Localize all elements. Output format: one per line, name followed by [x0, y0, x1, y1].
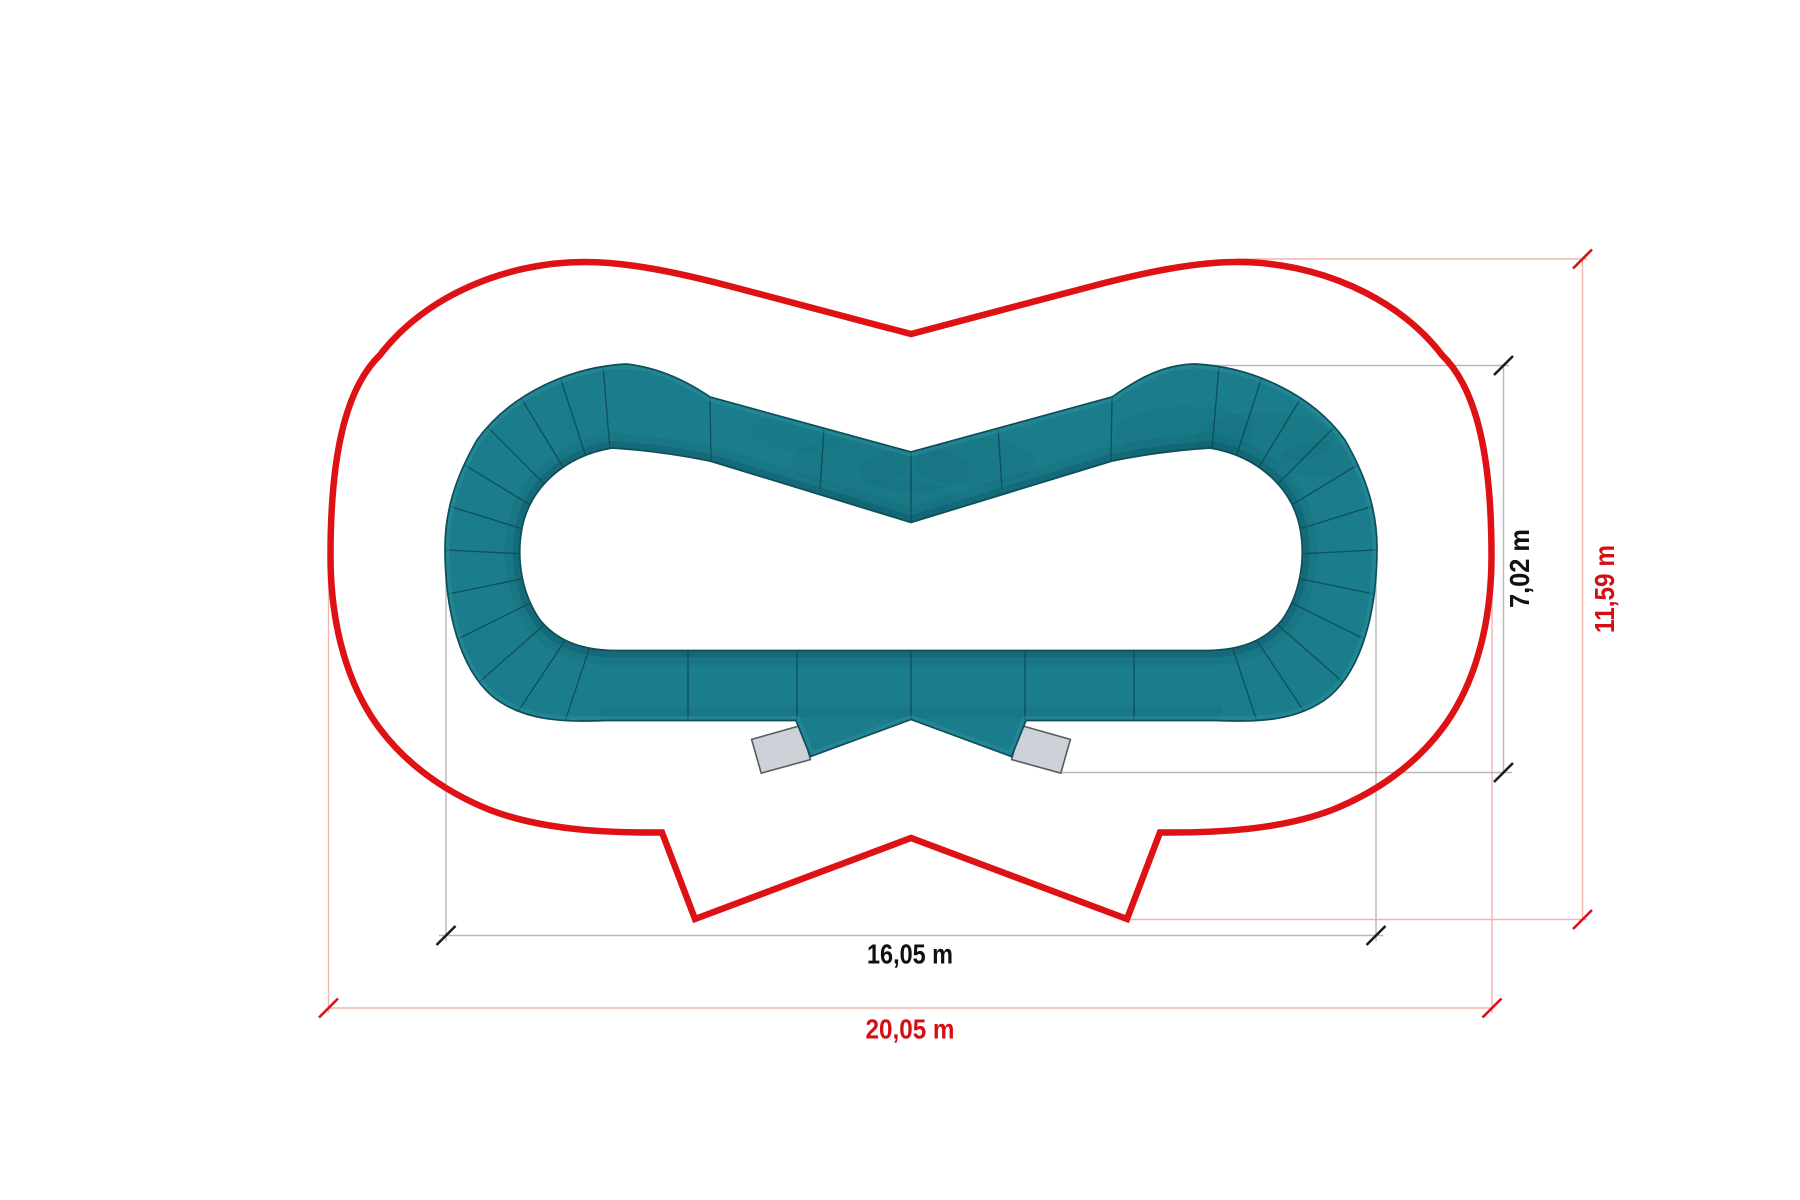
svg-text:16,05 m: 16,05 m	[867, 939, 953, 970]
svg-text:20,05 m: 20,05 m	[866, 1014, 955, 1045]
svg-text:7,02 m: 7,02 m	[1504, 529, 1535, 608]
svg-text:11,59 m: 11,59 m	[1589, 545, 1620, 633]
